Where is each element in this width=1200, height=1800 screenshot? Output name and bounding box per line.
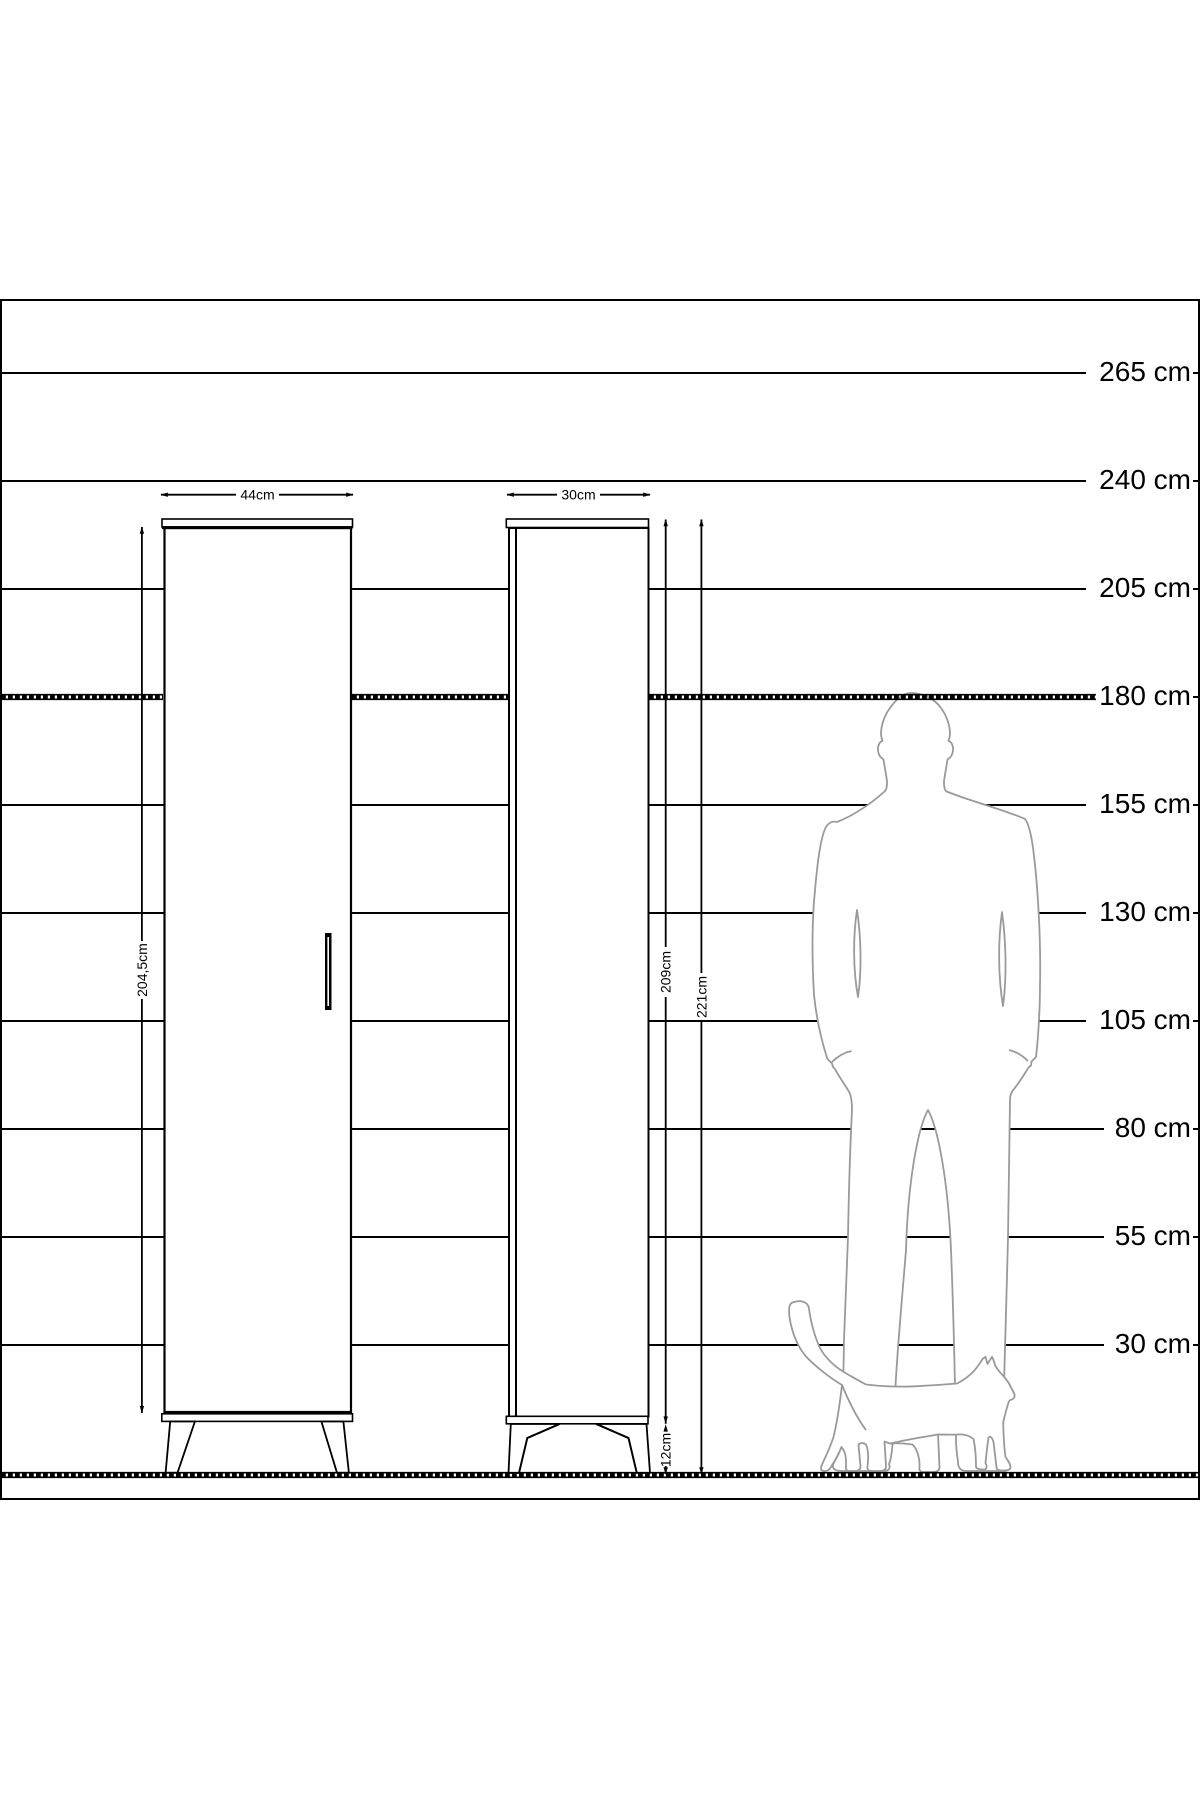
svg-text:80 cm: 80 cm	[1115, 1112, 1191, 1143]
svg-text:30 cm: 30 cm	[1115, 1328, 1191, 1359]
svg-text:105 cm: 105 cm	[1099, 1004, 1191, 1035]
svg-text:221cm: 221cm	[693, 976, 709, 1018]
svg-text:205 cm: 205 cm	[1099, 572, 1191, 603]
svg-text:180 cm: 180 cm	[1099, 680, 1191, 711]
svg-text:55 cm: 55 cm	[1115, 1220, 1191, 1251]
svg-text:12cm: 12cm	[658, 1433, 674, 1467]
svg-text:155 cm: 155 cm	[1099, 788, 1191, 819]
svg-text:44cm: 44cm	[240, 487, 274, 503]
svg-text:265 cm: 265 cm	[1099, 356, 1191, 387]
svg-text:209cm: 209cm	[658, 951, 674, 993]
svg-text:204,5cm: 204,5cm	[134, 943, 150, 997]
svg-text:130 cm: 130 cm	[1099, 896, 1191, 927]
svg-text:240 cm: 240 cm	[1099, 464, 1191, 495]
svg-text:30cm: 30cm	[561, 487, 595, 503]
